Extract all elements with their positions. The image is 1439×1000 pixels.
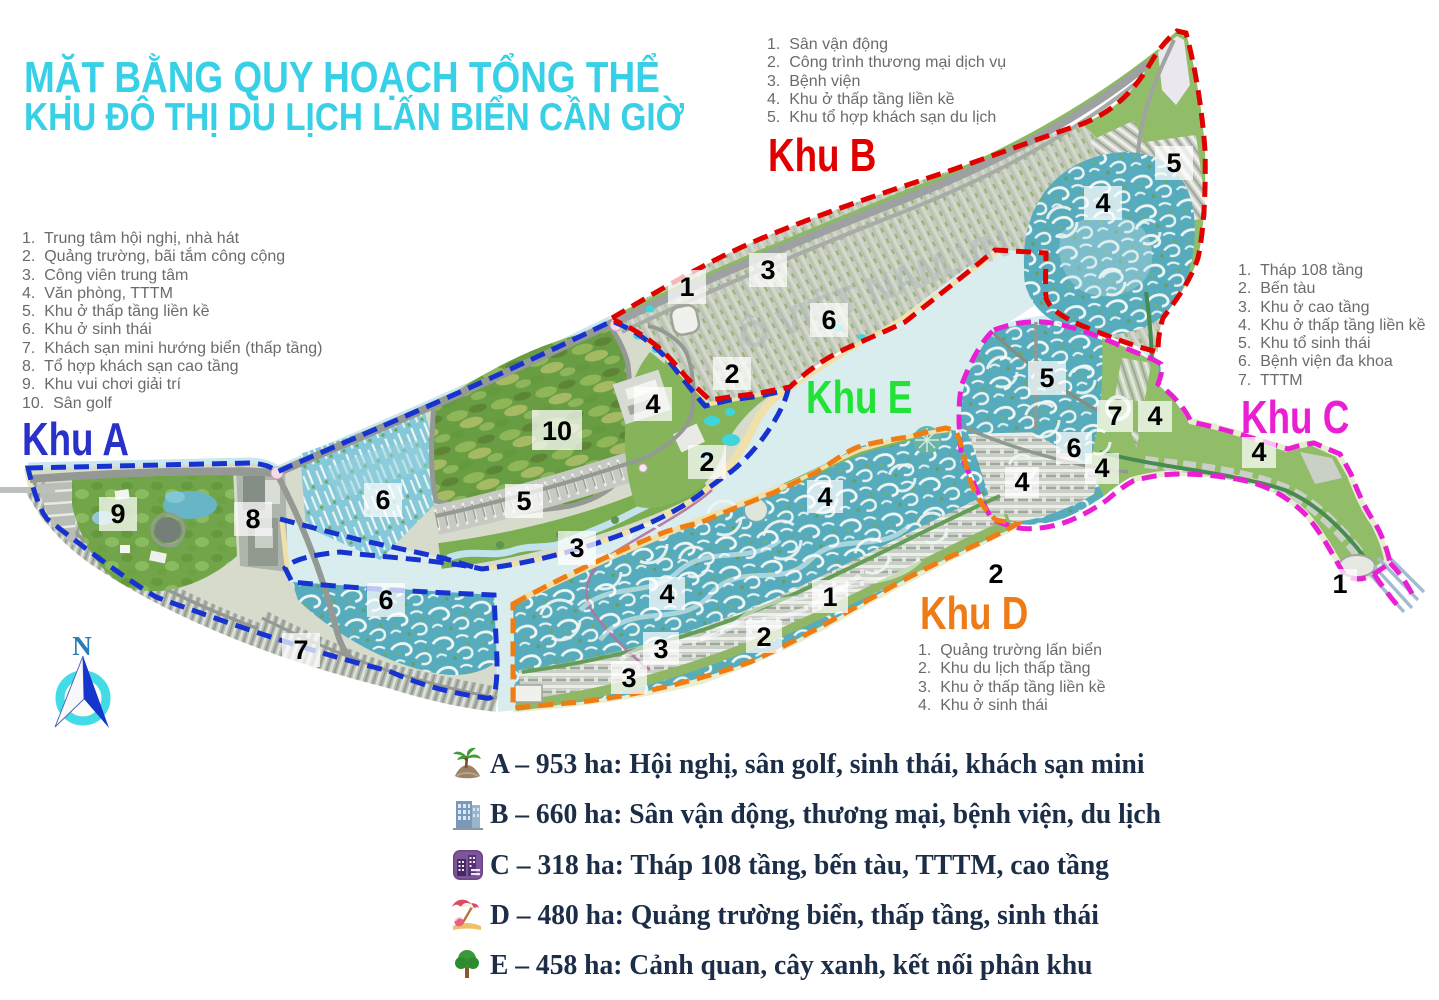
svg-text:10: 10	[542, 416, 572, 446]
svg-text:7: 7	[1107, 401, 1122, 431]
svg-text:2: 2	[756, 622, 771, 652]
svg-text:4: 4	[1094, 453, 1109, 483]
svg-text:4: 4	[1095, 188, 1110, 218]
svg-text:2: 2	[699, 447, 714, 477]
svg-text:6: 6	[821, 305, 836, 335]
svg-text:4: 4	[1147, 401, 1162, 431]
svg-text:1: 1	[679, 272, 694, 302]
svg-text:3: 3	[653, 634, 668, 664]
svg-text:6: 6	[378, 585, 393, 615]
svg-text:5: 5	[1166, 148, 1181, 178]
svg-text:3: 3	[569, 533, 584, 563]
svg-text:7: 7	[293, 635, 308, 665]
svg-text:4: 4	[817, 482, 832, 512]
svg-text:2: 2	[724, 359, 739, 389]
svg-text:2: 2	[988, 559, 1003, 589]
svg-text:1: 1	[1332, 569, 1347, 599]
svg-text:3: 3	[760, 255, 775, 285]
svg-text:5: 5	[1039, 363, 1054, 393]
svg-text:4: 4	[1014, 467, 1029, 497]
svg-text:3: 3	[621, 663, 636, 693]
svg-text:8: 8	[245, 504, 260, 534]
svg-text:4: 4	[659, 579, 674, 609]
svg-text:6: 6	[1066, 433, 1081, 463]
svg-text:5: 5	[516, 486, 531, 516]
svg-text:6: 6	[375, 485, 390, 515]
svg-text:1: 1	[822, 582, 837, 612]
svg-text:9: 9	[110, 499, 125, 529]
svg-text:4: 4	[645, 389, 660, 419]
svg-text:N: N	[72, 631, 92, 661]
